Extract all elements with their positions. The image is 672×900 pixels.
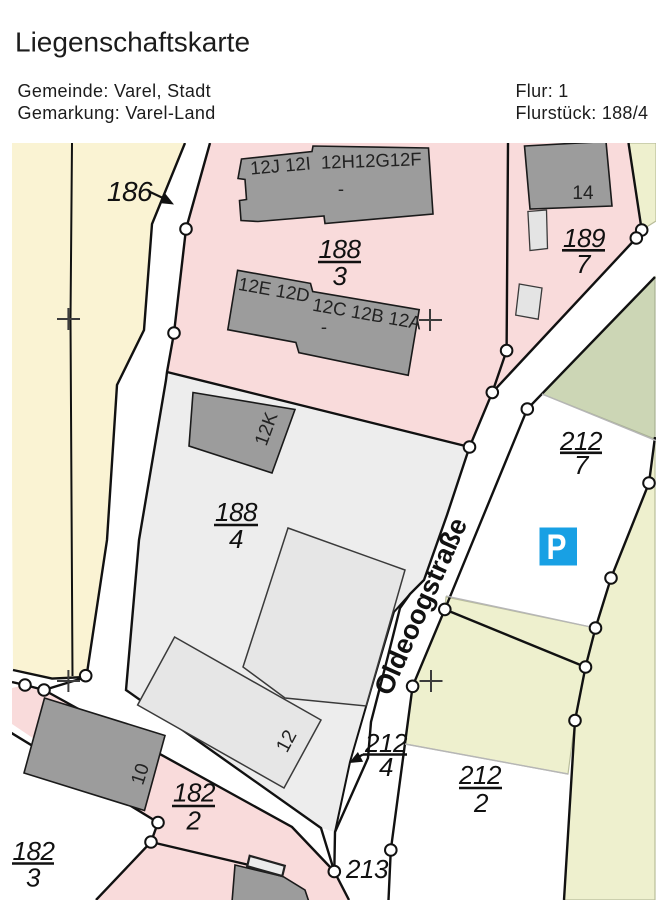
svg-text:182: 182 [13,836,56,866]
svg-text:4: 4 [229,524,243,554]
svg-text:4: 4 [379,752,393,782]
svg-text:Liegenschaftskarte: Liegenschaftskarte [15,27,250,58]
svg-text:188: 188 [319,234,362,264]
svg-text:3: 3 [26,863,41,893]
svg-text:186: 186 [107,176,153,207]
svg-text:Gemeinde: Varel, Stadt: Gemeinde: Varel, Stadt [18,81,211,101]
svg-text:-: - [321,316,327,337]
svg-text:182: 182 [173,778,216,808]
svg-text:-: - [338,178,344,199]
svg-text:7: 7 [576,249,592,279]
svg-text:212: 212 [458,760,502,790]
svg-text:2: 2 [186,806,202,836]
svg-text:188: 188 [215,497,258,527]
svg-text:2: 2 [473,788,489,818]
svg-text:7: 7 [574,450,590,480]
svg-text:Flur: 1: Flur: 1 [516,81,569,101]
svg-text:Flurstück: 188/4: Flurstück: 188/4 [516,103,649,123]
svg-text:P: P [547,528,567,567]
svg-text:213: 213 [345,854,389,884]
svg-text:Gemarkung: Varel-Land: Gemarkung: Varel-Land [18,103,216,123]
svg-text:14: 14 [572,183,594,204]
svg-text:3: 3 [333,261,348,291]
svg-text:12H12G12F: 12H12G12F [321,148,422,173]
